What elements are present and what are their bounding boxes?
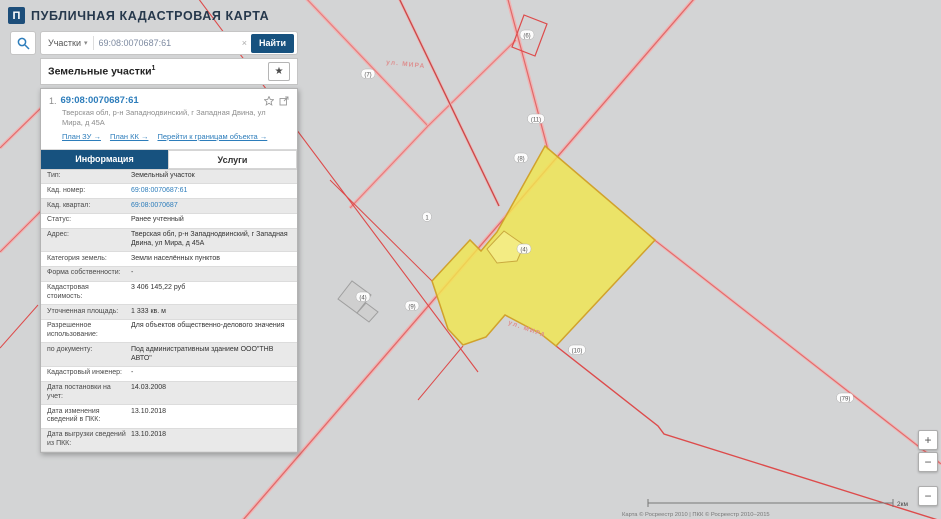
field-label: Кадастровая стоимость: (41, 282, 129, 305)
parcel-cad-number-link[interactable]: 69:08:0070687:61 (61, 95, 139, 106)
table-row: по документу: Под административным здани… (41, 343, 297, 367)
zoom-out-button[interactable]: − (918, 452, 938, 472)
search-bar: Участки ▾ × Найти (40, 31, 298, 55)
app-title: ПУБЛИЧНАЯ КАДАСТРОВАЯ КАРТА (31, 9, 269, 23)
tab-services[interactable]: Услуги (168, 150, 297, 169)
field-label: Кадастровый инженер: (41, 367, 129, 381)
field-value: 3 406 145,22 руб (129, 282, 297, 305)
table-row: Дата выгрузки сведений из ПКК: 13.10.201… (41, 429, 297, 453)
app-header: П ПУБЛИЧНАЯ КАДАСТРОВАЯ КАРТА (8, 7, 269, 24)
search-category-label: Участки (48, 38, 81, 48)
results-count: 1 (152, 65, 156, 72)
field-value: Ранее учтенный (129, 214, 297, 228)
results-title-text: Земельные участки (48, 66, 152, 78)
field-label: Статус: (41, 214, 129, 228)
field-value: - (129, 267, 297, 281)
field-label: Категория земель: (41, 252, 129, 266)
table-row: Кад. квартал: 69:08:0070687 (41, 199, 297, 214)
find-button[interactable]: Найти (251, 34, 294, 53)
search-icon-button[interactable] (10, 31, 36, 55)
map-attribution: Карта © Росреестр 2010 | ПКК © Росреестр… (622, 511, 770, 518)
field-label: Уточненная площадь: (41, 305, 129, 319)
parcel-info-panel: 1. 69:08:0070687:61 Тверская обл, р-н За… (40, 88, 298, 453)
map-tool-button[interactable]: − (918, 486, 938, 506)
field-value: 1 333 кв. м (129, 305, 297, 319)
parcel-label: (4) (359, 296, 366, 302)
field-value-link[interactable]: 69:08:0070687:61 (129, 184, 297, 198)
table-row: Разрешенное использование: Для объектов … (41, 320, 297, 344)
tab-information[interactable]: Информация (41, 150, 168, 169)
field-label: Адрес: (41, 229, 129, 252)
parcel-label: (10) (572, 349, 583, 355)
results-header: Земельные участки1 ★ (40, 58, 298, 85)
field-label: Кад. номер: (41, 184, 129, 198)
clear-search-icon[interactable]: × (238, 38, 251, 48)
parcel-item-header: 1. 69:08:0070687:61 Тверская обл, р-н За… (41, 89, 297, 149)
table-row: Категория земель: Земли населённых пункт… (41, 252, 297, 267)
search-icon (17, 37, 30, 50)
favorite-item-icon[interactable] (264, 96, 274, 106)
field-value: Тверская обл, р-н Западнодвинский, г Зап… (129, 229, 297, 252)
table-row: Тип: Земельный участок (41, 170, 297, 185)
field-label: Дата выгрузки сведений из ПКК: (41, 429, 129, 452)
chevron-down-icon: ▾ (84, 39, 88, 47)
favorite-star-button[interactable]: ★ (268, 62, 290, 81)
field-value: 14.03.2008 (129, 382, 297, 405)
parcel-label: (79) (840, 397, 851, 403)
parcel-index: 1. (49, 96, 57, 106)
field-label: Разрешенное использование: (41, 320, 129, 343)
scale-label: 2км (897, 501, 908, 508)
field-value: Для объектов общественно-делового значен… (129, 320, 297, 343)
parcel-label: (4) (520, 248, 527, 254)
field-label: Кад. квартал: (41, 199, 129, 213)
table-row: Кадастровый инженер: - (41, 367, 297, 382)
table-row: Форма собственности: - (41, 267, 297, 282)
search-input[interactable] (94, 38, 238, 48)
field-value: 13.10.2018 (129, 405, 297, 428)
plan-kk-link[interactable]: План КК → (110, 132, 149, 141)
table-row: Дата изменения сведений в ПКК: 13.10.201… (41, 405, 297, 429)
search-category-dropdown[interactable]: Участки ▾ (41, 38, 93, 48)
table-row: Дата постановки на учет: 14.03.2008 (41, 382, 297, 406)
field-label: по документу: (41, 343, 129, 366)
table-row: Адрес: Тверская обл, р-н Западнодвинский… (41, 229, 297, 253)
zoom-in-button[interactable]: + (918, 430, 938, 450)
field-value-link[interactable]: 69:08:0070687 (129, 199, 297, 213)
parcel-label: (7) (364, 73, 371, 79)
parcel-label: (11) (531, 118, 541, 124)
table-row: Статус: Ранее учтенный (41, 214, 297, 229)
goto-bounds-link[interactable]: Перейти к границам объекта → (157, 132, 267, 141)
field-value: Земельный участок (129, 170, 297, 184)
table-row: Уточненная площадь: 1 333 кв. м (41, 305, 297, 320)
field-label: Тип: (41, 170, 129, 184)
parcel-label: (9) (408, 305, 415, 311)
field-label: Форма собственности: (41, 267, 129, 281)
field-label: Дата постановки на учет: (41, 382, 129, 405)
plan-zu-link[interactable]: План ЗУ → (62, 132, 101, 141)
field-value: 13.10.2018 (129, 429, 297, 452)
field-value: Под административным зданием ООО"ТНВ АВТ… (129, 343, 297, 366)
results-title: Земельные участки1 (48, 65, 155, 78)
export-item-icon[interactable] (279, 96, 289, 106)
search-row: Участки ▾ × Найти (10, 31, 298, 55)
field-value: Земли населённых пунктов (129, 252, 297, 266)
parcel-label: (8) (517, 157, 524, 163)
parcel-label: (6) (523, 34, 530, 40)
field-label: Дата изменения сведений в ПКК: (41, 405, 129, 428)
parcel-address: Тверская обл, р-н Западнодвинский, г Зап… (62, 108, 267, 128)
parcel-tabs: Информация Услуги (41, 149, 297, 169)
app-logo-icon: П (8, 7, 25, 24)
field-value: - (129, 367, 297, 381)
parcel-info-table: Тип: Земельный участок Кад. номер: 69:08… (41, 169, 297, 453)
table-row: Кадастровая стоимость: 3 406 145,22 руб (41, 282, 297, 306)
table-row: Кад. номер: 69:08:0070687:61 (41, 184, 297, 199)
